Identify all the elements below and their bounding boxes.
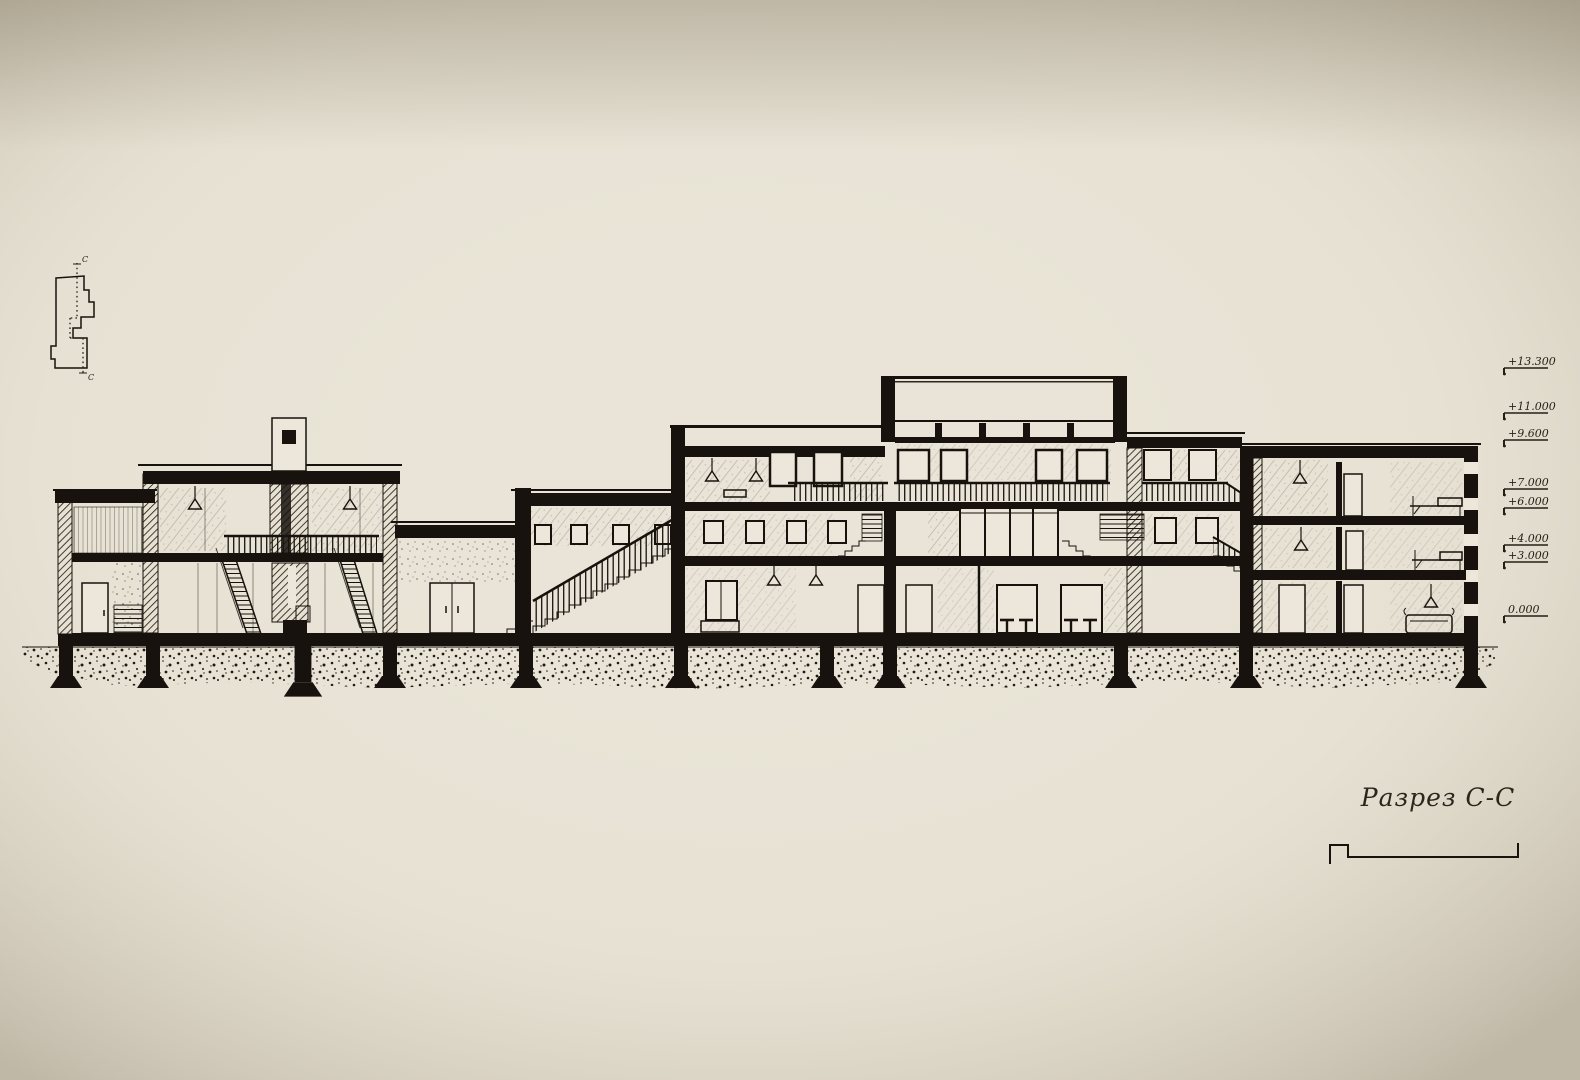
key-plan-mark-top: С: [82, 255, 88, 264]
window-with-mullion: [706, 581, 737, 620]
left-exterior-wall: [58, 493, 72, 634]
glazed-partition: [960, 508, 1058, 558]
level-label: +4.000: [1508, 532, 1549, 545]
double-door: [430, 583, 474, 633]
left-room-upper-wall: [74, 507, 142, 553]
window: [1077, 450, 1107, 481]
connector-roof: [395, 525, 525, 538]
balcony-railing: [894, 483, 1110, 501]
door: [1346, 531, 1363, 570]
level-label: +11.000: [1508, 400, 1556, 413]
glazed-door: [1061, 585, 1102, 633]
window: [828, 521, 846, 543]
level-label: +9.600: [1508, 427, 1549, 440]
stove: [283, 620, 307, 635]
window: [535, 525, 551, 544]
middle-left-column: [515, 488, 531, 633]
glazed-door: [814, 452, 842, 486]
section-drawing: С С: [0, 0, 1580, 1080]
window: [941, 450, 967, 481]
door: [1344, 474, 1362, 516]
interior-wall: [884, 511, 896, 633]
window: [1036, 450, 1062, 481]
window: [613, 525, 629, 544]
balcony-railing: [1142, 483, 1228, 501]
door: [1279, 585, 1305, 633]
drawing-sheet: С С: [0, 0, 1580, 1080]
window: [704, 521, 723, 543]
level-label: 0.000: [1508, 603, 1540, 616]
central-right-roof: [1127, 437, 1242, 448]
balcony-railing: [788, 483, 888, 501]
right-exterior-wall: [1464, 446, 1478, 658]
window: [1189, 450, 1216, 480]
door: [1344, 585, 1363, 633]
door: [858, 585, 884, 633]
window: [571, 525, 587, 544]
glazed-door: [770, 452, 796, 486]
door: [82, 583, 108, 633]
left-wing-roof: [55, 491, 155, 503]
hall-roof: [143, 471, 400, 484]
window: [1155, 518, 1176, 543]
level-label: +7.000: [1508, 476, 1549, 489]
glazed-door: [997, 585, 1037, 633]
ground-slab: [58, 633, 1478, 646]
chimney: [272, 418, 306, 471]
window: [1144, 450, 1171, 480]
middle-roof: [515, 493, 682, 506]
right-wing-roof: [1242, 446, 1478, 458]
hall-balcony-railing: [224, 536, 379, 553]
level-label: +6.000: [1508, 495, 1549, 508]
window: [898, 450, 929, 481]
right-wing: [1238, 443, 1481, 658]
window: [746, 521, 764, 543]
drawing-title: Разрез С-С: [1360, 783, 1515, 812]
key-plan-mark-bottom: С: [88, 373, 94, 382]
level-label: +3.000: [1508, 549, 1549, 562]
window: [787, 521, 806, 543]
door: [906, 585, 932, 633]
level-label: +13.300: [1508, 355, 1556, 368]
